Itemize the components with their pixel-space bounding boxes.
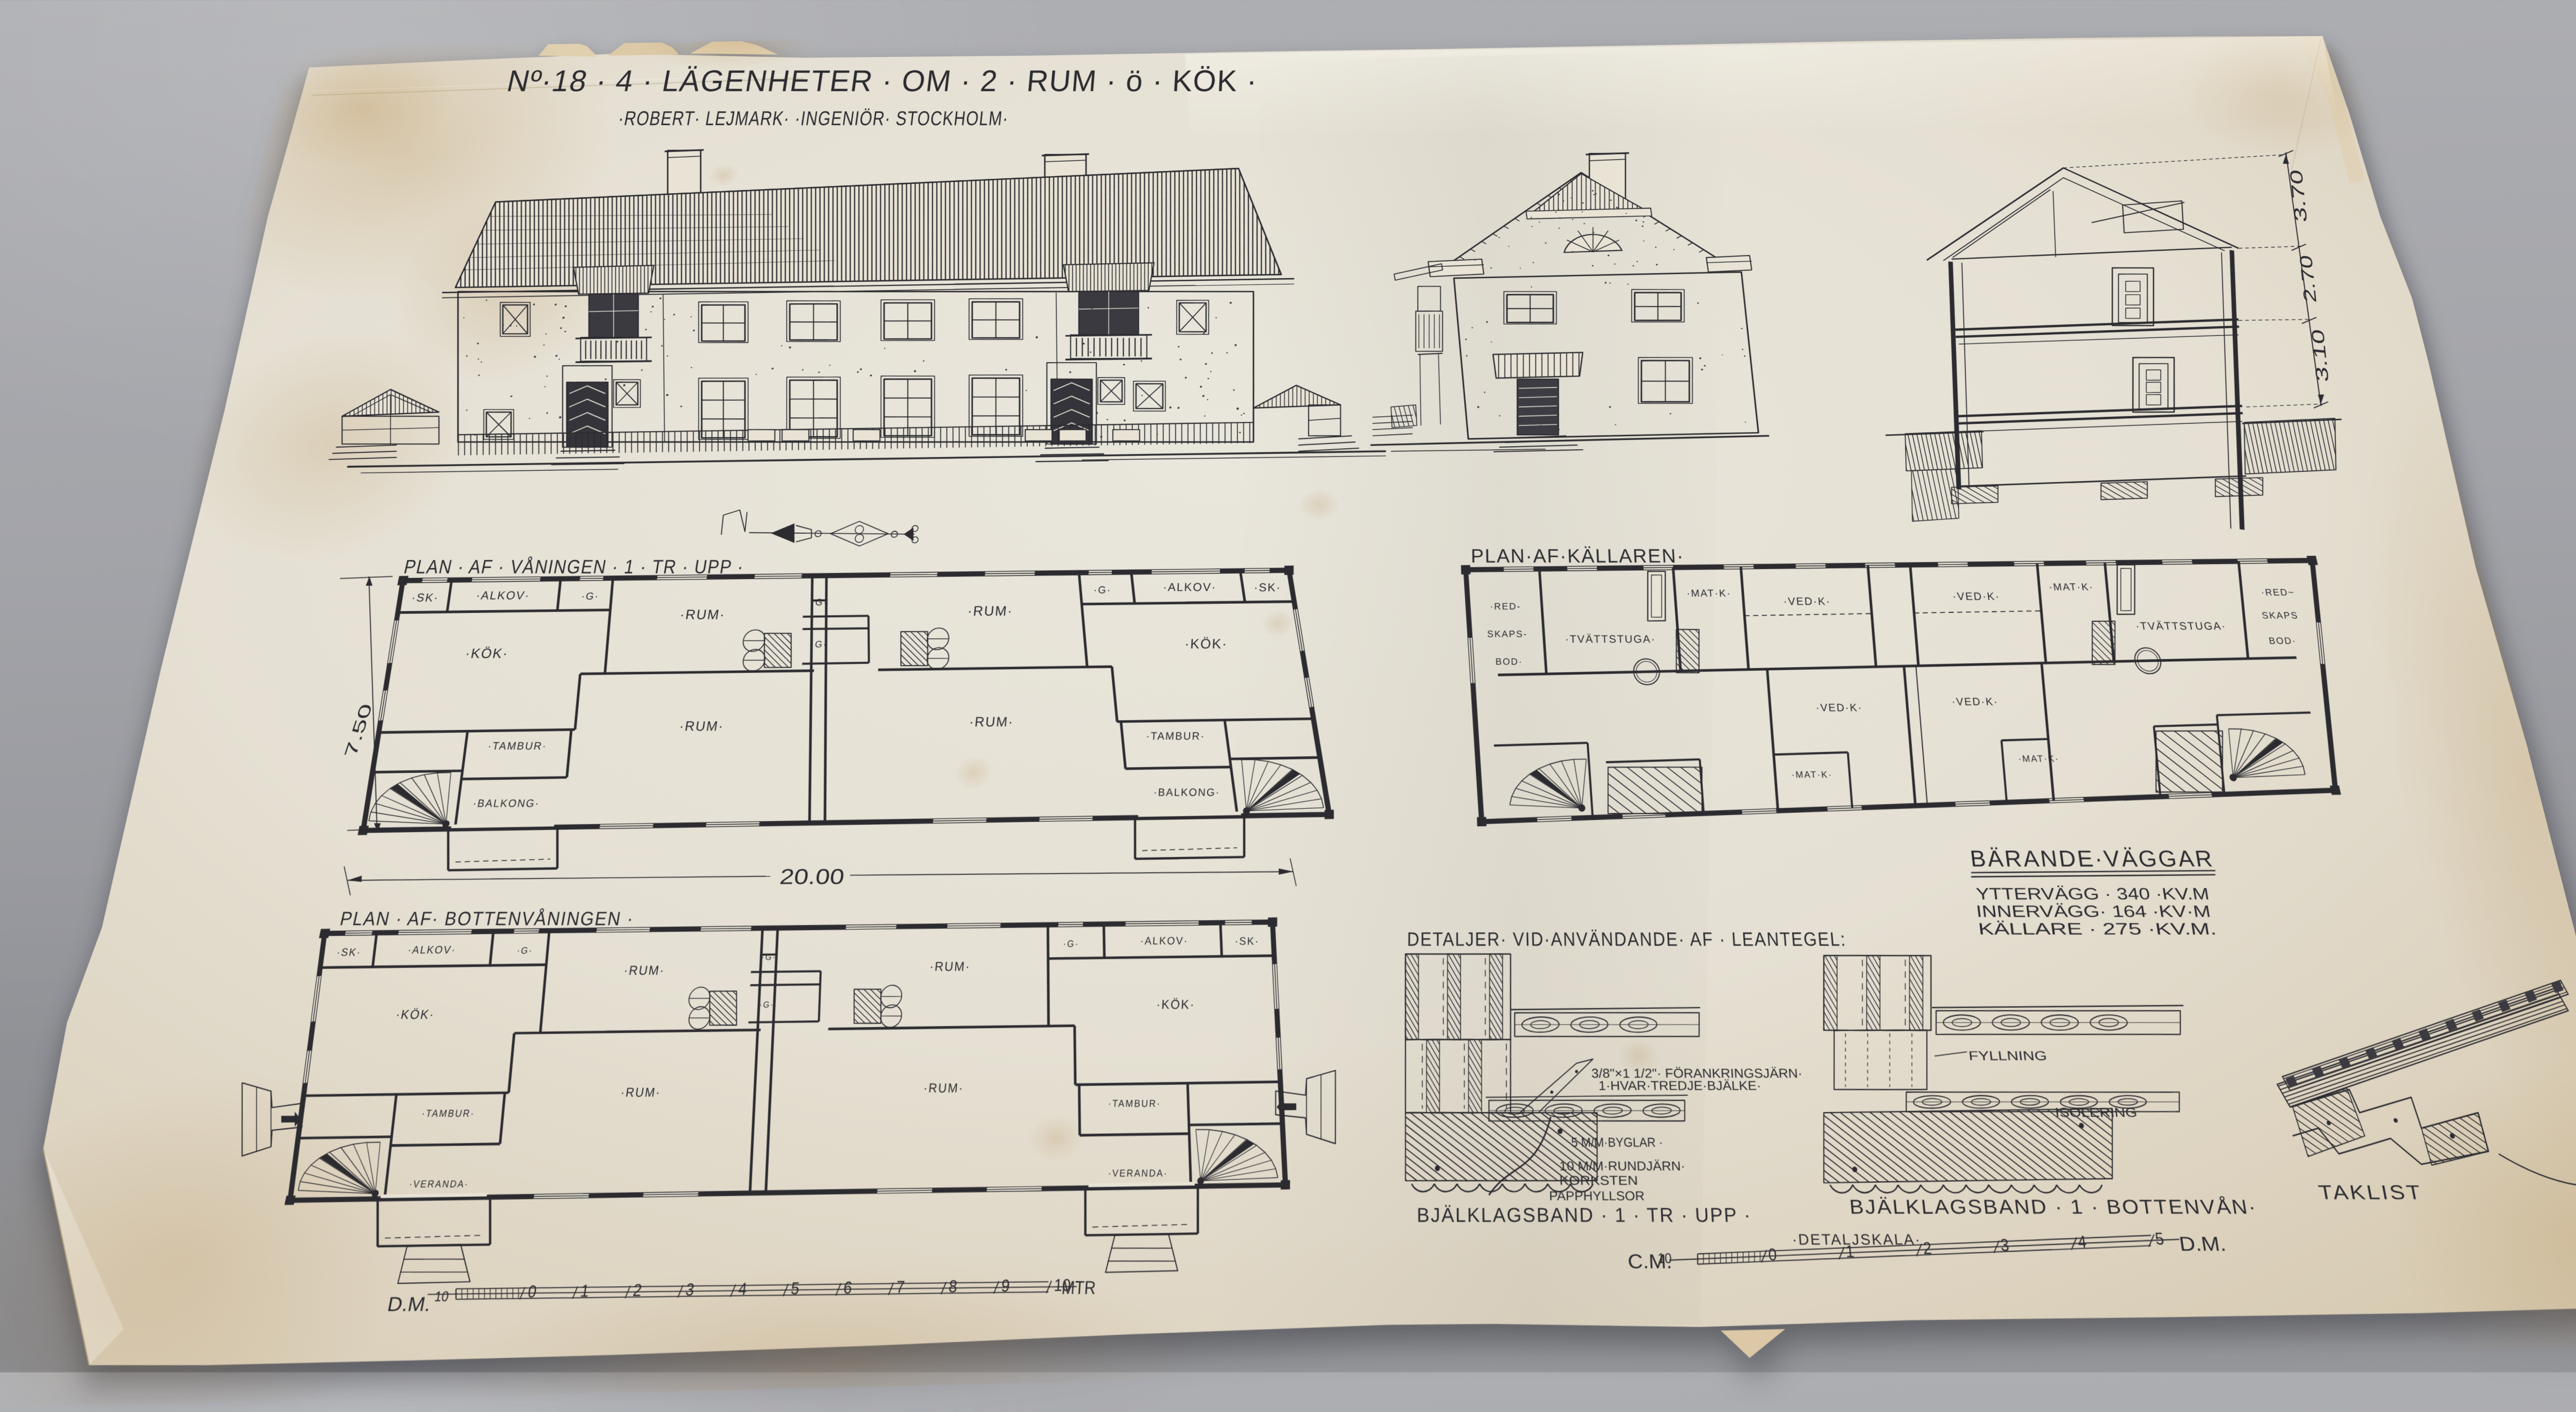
svg-text:·TAMBUR·: ·TAMBUR· (1108, 1098, 1161, 1109)
svg-text:·VERANDA·: ·VERANDA· (1108, 1167, 1168, 1179)
svg-text:·RUM·: ·RUM· (620, 1085, 662, 1100)
svg-text:·TAMBUR·: ·TAMBUR· (421, 1108, 476, 1119)
svg-text:ISOLERING: ISOLERING (2054, 1105, 2138, 1120)
svg-text:·RED~: ·RED~ (2260, 588, 2296, 598)
svg-text:·KÖK·: ·KÖK· (464, 645, 510, 661)
svg-text:·SK·: ·SK· (410, 592, 440, 605)
svg-text:·SK·: ·SK· (1253, 582, 1281, 594)
svg-text:·ALKOV·: ·ALKOV· (1140, 935, 1189, 947)
svg-text:·ALKOV·: ·ALKOV· (475, 590, 531, 603)
svg-text:·KÖK·: ·KÖK· (1184, 636, 1228, 652)
svg-text:·BALKONG·: ·BALKONG· (472, 797, 541, 809)
svg-text:·MAT·K·: ·MAT·K· (2048, 581, 2094, 592)
svg-text:·G·: ·G· (761, 952, 777, 962)
svg-text:KÄLLARE · 275 ·KV.M.: KÄLLARE · 275 ·KV.M. (1977, 920, 2218, 939)
svg-text:·RED-: ·RED- (1490, 602, 1521, 612)
svg-text:10: 10 (1657, 1250, 1672, 1266)
svg-text:·MAT·K·: ·MAT·K· (2018, 754, 2060, 764)
svg-text:·RUM·: ·RUM· (923, 1081, 964, 1096)
svg-text:·KÖK·: ·KÖK· (395, 1007, 436, 1022)
svg-text:·VED·K·: ·VED·K· (1952, 590, 2001, 602)
svg-text:·RUM·: ·RUM· (929, 959, 971, 974)
svg-text:·ALKOV·: ·ALKOV· (406, 944, 457, 956)
svg-text:0: 0 (1768, 1245, 1777, 1264)
svg-text:·G·: ·G· (810, 639, 828, 650)
svg-text:·G·: ·G· (759, 1000, 775, 1010)
svg-text:·RUM·: ·RUM· (967, 603, 1014, 619)
svg-text:·SK·: ·SK· (1234, 935, 1260, 947)
svg-text:·G·: ·G· (516, 945, 534, 956)
svg-text:·G·: ·G· (1093, 584, 1112, 596)
svg-text:YTTERVÄGG · 340 ·KV.M: YTTERVÄGG · 340 ·KV.M (1975, 885, 2211, 904)
svg-text:·VED·K·: ·VED·K· (1951, 696, 1999, 708)
svg-text:PLAN · AF· BOTTENVÅNINGEN ·: PLAN · AF· BOTTENVÅNINGEN · (338, 908, 636, 929)
svg-text:PLAN · AF · VÅNINGEN · 1 · TR: PLAN · AF · VÅNINGEN · 1 · TR · UPP · (402, 556, 745, 577)
svg-text:·RUM·: ·RUM· (679, 719, 725, 734)
svg-text:·SK·: ·SK· (335, 947, 363, 959)
svg-text:·DETALJSKALA·: ·DETALJSKALA· (1791, 1232, 1922, 1249)
svg-text:·RUM·: ·RUM· (969, 714, 1014, 730)
svg-text:SKAPS: SKAPS (2261, 610, 2299, 621)
svg-text:BJÄLKLAGSBAND · 1 · BOTTENVÅN·: BJÄLKLAGSBAND · 1 · BOTTENVÅN· (1849, 1195, 2259, 1218)
svg-text:BJÄLKLAGSBAND · 1 · TR · UPP ·: BJÄLKLAGSBAND · 1 · TR · UPP · (1417, 1205, 1752, 1227)
svg-text:·TAMBUR·: ·TAMBUR· (487, 740, 548, 752)
svg-text:D.M.: D.M. (2178, 1233, 2227, 1255)
svg-text:·RUM·: ·RUM· (623, 963, 666, 978)
svg-text:·BALKONG·: ·BALKONG· (1153, 787, 1221, 798)
svg-text:9: 9 (1001, 1277, 1010, 1296)
svg-text:PLAN·AF·KÄLLAREN·: PLAN·AF·KÄLLAREN· (1471, 545, 1685, 567)
svg-text:BOD·: BOD· (2268, 636, 2297, 646)
svg-text:·KÖK·: ·KÖK· (1156, 997, 1196, 1012)
svg-text:·G·: ·G· (810, 598, 828, 608)
svg-text:TAKLIST: TAKLIST (2317, 1181, 2425, 1204)
svg-text:8: 8 (948, 1277, 958, 1296)
svg-text:PAPPHYLLSOR: PAPPHYLLSOR (1549, 1188, 1645, 1203)
svg-text:BÄRANDE·VÄGGAR: BÄRANDE·VÄGGAR (1969, 846, 2216, 872)
svg-text:5 M/M·BYGLAR ·: 5 M/M·BYGLAR · (1571, 1135, 1663, 1150)
svg-text:·VED·K·: ·VED·K· (1783, 596, 1832, 607)
svg-text:KORKSTEN: KORKSTEN (1559, 1173, 1638, 1188)
svg-text:·TAMBUR·: ·TAMBUR· (1146, 730, 1206, 742)
svg-text:·G·: ·G· (581, 590, 600, 602)
svg-text:·ALKOV·: ·ALKOV· (1163, 582, 1217, 594)
svg-text:·RUM·: ·RUM· (679, 607, 727, 622)
svg-text:D.M.: D.M. (385, 1294, 433, 1316)
svg-text:INNERVÄGG· 164 ·KV·M: INNERVÄGG· 164 ·KV·M (1975, 903, 2212, 921)
svg-text:·TVÄTTSTUGA·: ·TVÄTTSTUGA· (2134, 620, 2227, 632)
svg-text:1·HVAR·TREDJE·BJÄLKE·: 1·HVAR·TREDJE·BJÄLKE· (1598, 1078, 1761, 1093)
svg-text:BOD·: BOD· (1496, 657, 1523, 668)
svg-text:·ROBERT· LEJMARK· ·INGENIÖR· S: ·ROBERT· LEJMARK· ·INGENIÖR· STOCKHOLM· (616, 107, 1010, 129)
svg-text:·MAT·K·: ·MAT·K· (1686, 588, 1732, 599)
svg-text:MTR: MTR (1061, 1277, 1096, 1298)
svg-text:·VED·K·: ·VED·K· (1815, 702, 1863, 713)
svg-text:SKAPS-: SKAPS- (1487, 629, 1528, 639)
svg-text:FYLLNING: FYLLNING (1968, 1048, 2047, 1063)
svg-text:Nº·18 · 4 · LÄGENHETER · OM ·: Nº·18 · 4 · LÄGENHETER · OM · 2 · RUM · … (504, 64, 1258, 98)
svg-text:·VERANDA·: ·VERANDA· (408, 1178, 470, 1189)
svg-text:·TVÄTTSTUGA·: ·TVÄTTSTUGA· (1565, 633, 1656, 645)
svg-text:·G·: ·G· (1063, 939, 1079, 949)
svg-text:DETALJER· VID·ANVÄNDANDE· AF ·: DETALJER· VID·ANVÄNDANDE· AF · LEANTEGEL… (1407, 928, 1847, 950)
svg-text:20.00: 20.00 (778, 864, 846, 889)
svg-text:10 M/M·RUNDJÄRN·: 10 M/M·RUNDJÄRN· (1559, 1159, 1685, 1173)
svg-text:·MAT·K·: ·MAT·K· (1791, 770, 1833, 780)
